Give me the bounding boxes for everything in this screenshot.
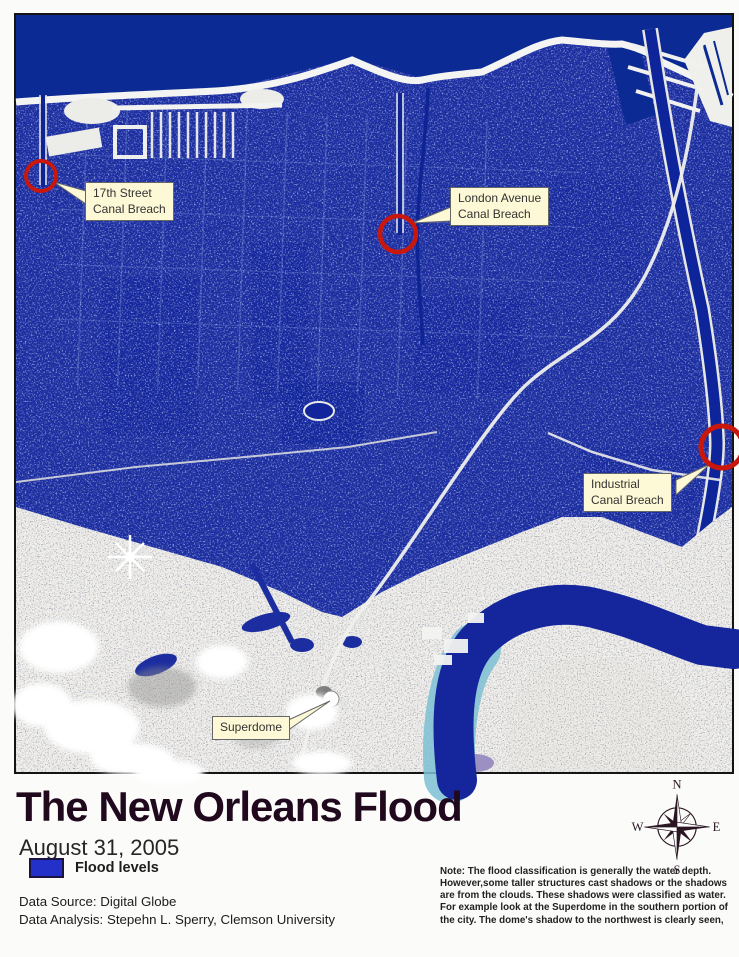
callout-line: 17th Street — [93, 186, 166, 202]
callout-line: Superdome — [220, 720, 282, 736]
callout-line: Canal Breach — [591, 493, 664, 509]
compass-label-w: W — [632, 820, 644, 834]
callout-line: Industrial — [591, 477, 664, 493]
compass-cardinal-points — [644, 794, 709, 859]
callout-london-avenue-canal-breach: London Avenue Canal Breach — [450, 187, 549, 226]
credits: Data Source: Digital Globe Data Analysis… — [19, 893, 335, 928]
compass-label-e: E — [713, 820, 721, 834]
callout-line: London Avenue — [458, 191, 541, 207]
callout-line: Canal Breach — [458, 207, 541, 223]
satellite-flood-map — [14, 13, 734, 774]
compass-rose: N S W E — [627, 777, 727, 877]
city-park-stadium — [304, 402, 334, 420]
note-line: For example look at the Superdome in the… — [440, 902, 736, 914]
data-analysis-line: Data Analysis: Stepehn L. Sperry, Clemso… — [19, 911, 335, 929]
compass-label-n: N — [672, 778, 681, 792]
callout-line: Canal Breach — [93, 202, 166, 218]
legend-label: Flood levels — [75, 860, 159, 876]
data-source-line: Data Source: Digital Globe — [19, 893, 335, 911]
legend: Flood levels — [29, 858, 159, 878]
page-title: The New Orleans Flood — [16, 783, 462, 831]
note-line: However,some taller structures cast shad… — [440, 878, 736, 890]
callout-superdome: Superdome — [212, 716, 290, 740]
note-line: are from the clouds. These shadows were … — [440, 890, 736, 902]
compass-label-s: S — [674, 863, 681, 877]
callout-17th-street-canal-breach: 17th Street Canal Breach — [85, 182, 174, 221]
note-line: the city. The dome's shadow to the north… — [440, 915, 736, 927]
flood-level-swatch — [29, 858, 64, 878]
callout-industrial-canal-breach: Industrial Canal Breach — [583, 473, 672, 512]
scanned-map-page: 17th Street Canal Breach London Avenue C… — [0, 0, 739, 957]
